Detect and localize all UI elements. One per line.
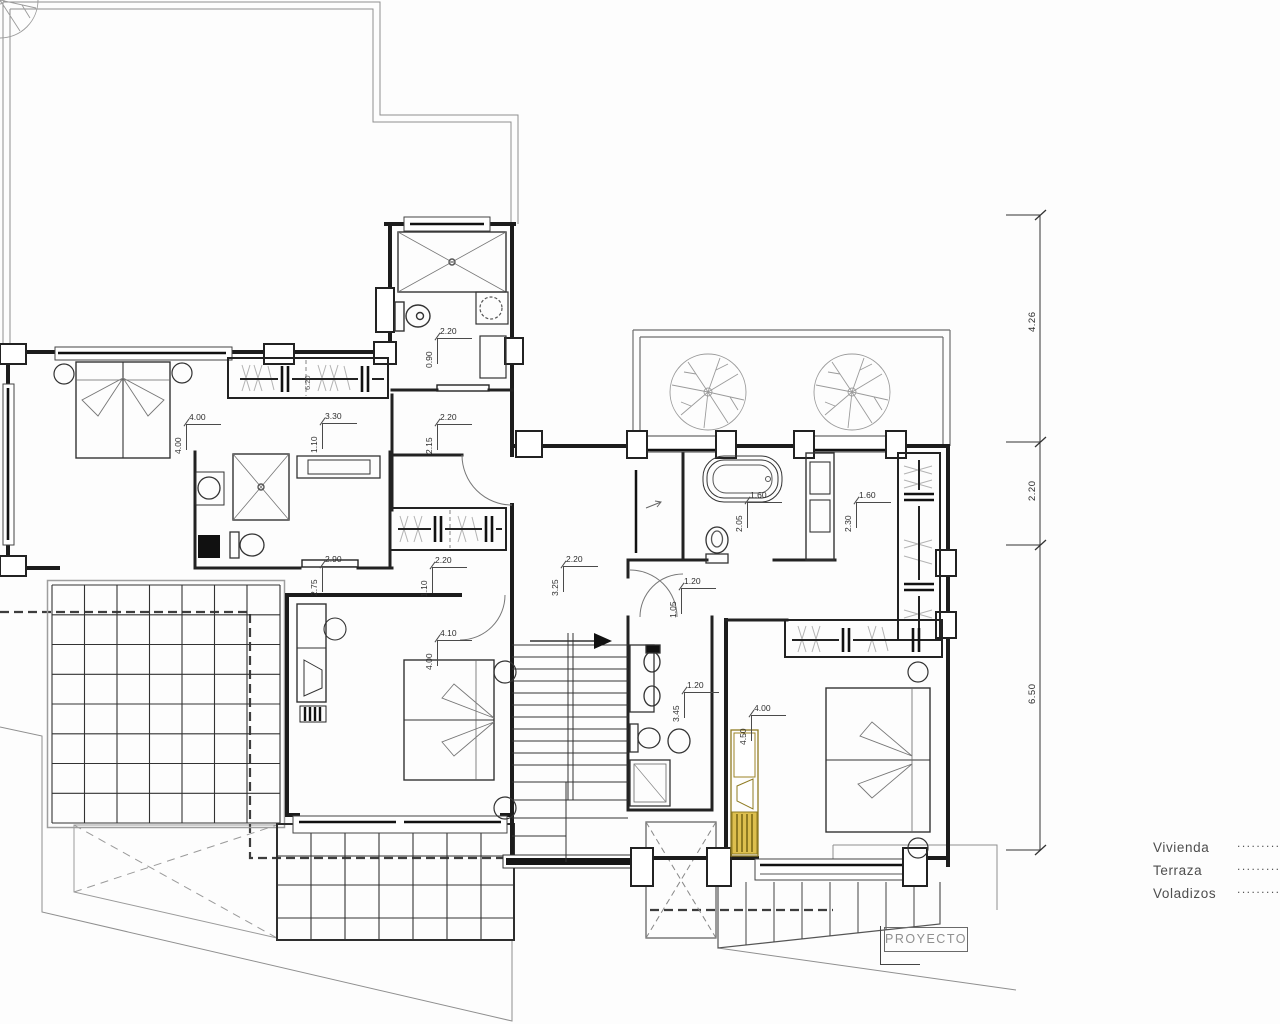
dimension-value-v: 1.05	[668, 601, 678, 618]
floor-plan-canvas	[0, 0, 1280, 1024]
chain-dimension-value: 4.26	[1027, 312, 1038, 333]
wall-piers	[0, 288, 956, 886]
legend-label: Vivienda	[1153, 840, 1237, 855]
dimension-value-h: 3.30	[325, 411, 342, 421]
bathroom-midleft	[196, 454, 380, 567]
arrow-mark	[646, 501, 661, 508]
dimension-value-v: 3.45	[671, 705, 681, 722]
dimension-value-v: 1.10	[309, 436, 319, 453]
dimension-mark	[322, 566, 357, 592]
dimension-mark	[186, 424, 221, 450]
dimension-mark	[432, 567, 467, 593]
dimension-mark	[856, 502, 891, 528]
wardrobe-right-vertical	[898, 453, 940, 640]
bathroom-bottom	[630, 645, 690, 806]
dimension-value-h: 4.00	[189, 412, 206, 422]
bathtub-icon	[703, 456, 782, 502]
bath-shelf	[297, 456, 380, 478]
dimension-value-v: 4.00	[173, 437, 183, 454]
staircase	[512, 633, 628, 862]
dimension-value-v: 2.75	[309, 579, 319, 596]
dimension-value-h: 4.10	[440, 628, 457, 638]
dimension-value-v: 3.25	[550, 579, 560, 596]
dimension-mark	[563, 566, 598, 592]
dimension-value-v: 4.50	[738, 728, 748, 745]
dimension-value-h: 1.60	[859, 490, 876, 500]
terrace-tiles-bottom	[277, 824, 514, 940]
light-shaft	[646, 822, 716, 938]
nightstand	[54, 364, 74, 384]
wardrobe-hall	[390, 508, 506, 550]
legend-row: Voladizos............	[1153, 882, 1280, 905]
legend-dots: ............	[1237, 859, 1280, 873]
project-title: PROYECTO	[885, 932, 967, 946]
legend-label: Voladizos	[1153, 886, 1237, 901]
shower-tray-icon	[630, 760, 670, 806]
nightstand	[172, 363, 192, 383]
dimension-value-v: 2.15	[424, 437, 434, 454]
bottom-left-overhang-cross	[74, 825, 277, 938]
dimension-mark	[437, 640, 472, 666]
bidet-icon	[668, 729, 690, 753]
dimension-mark	[437, 424, 472, 450]
bathroom-top	[395, 232, 508, 391]
chain-dimension-value: 2.20	[1027, 481, 1038, 502]
dimension-mark	[747, 502, 782, 528]
inline-annotation: 6.20	[303, 375, 312, 390]
sliding-door	[437, 385, 489, 391]
shower-tray-icon	[398, 232, 506, 292]
door-arcs	[460, 455, 683, 640]
dimension-value-v: 0.90	[424, 351, 434, 368]
dimension-value-v: 4.00	[424, 653, 434, 670]
dimension-value-h: 1.60	[750, 490, 767, 500]
dimension-mark	[681, 588, 716, 614]
floor-plan-sheet: 2.200.902.202.154.004.003.301.102.902.75…	[0, 0, 1280, 1024]
desk	[297, 604, 346, 722]
shower-tray-icon	[233, 454, 289, 520]
highlighted-cabinet	[731, 730, 758, 856]
dimension-value-h: 4.00	[754, 703, 771, 713]
washbasin-icon	[196, 472, 224, 505]
dimension-value-h: 2.20	[566, 554, 583, 564]
nightstand	[908, 662, 928, 682]
chair-icon	[324, 618, 346, 640]
radiator	[198, 535, 220, 558]
toilet-icon	[706, 527, 728, 563]
project-title-box: PROYECTO	[884, 927, 968, 952]
dimension-chain	[1006, 210, 1046, 855]
dimension-mark	[322, 423, 357, 449]
washbasin-icon	[476, 292, 508, 378]
bed-centre	[404, 660, 516, 819]
dimension-mark	[437, 338, 472, 364]
dimension-value-h: 1.20	[684, 576, 701, 586]
dimension-value-v: 1.10	[419, 580, 429, 597]
direction-arrow-icon	[594, 633, 612, 649]
dimension-value-v: 2.30	[843, 515, 853, 532]
toilet-icon	[630, 724, 660, 752]
dimension-mark	[751, 715, 786, 741]
toilet-icon	[395, 302, 430, 331]
monitor-icon	[304, 660, 322, 696]
bathroom-suite	[636, 453, 834, 563]
dimension-value-v: 2.05	[734, 515, 744, 532]
toilet-icon	[230, 532, 264, 558]
bed-left	[54, 362, 192, 458]
legend-row: Terraza............	[1153, 859, 1280, 882]
tree-terrace	[633, 330, 950, 446]
legend-label: Terraza	[1153, 863, 1237, 878]
dimension-value-h: 2.20	[440, 326, 457, 336]
dimension-value-h: 2.20	[440, 412, 457, 422]
dimension-value-h: 2.20	[435, 555, 452, 565]
double-washbasin	[630, 645, 660, 712]
legend: Vivienda............Terraza............V…	[1153, 836, 1280, 905]
closet-column	[806, 453, 834, 560]
dimension-value-h: 2.90	[325, 554, 342, 564]
legend-row: Vivienda............	[1153, 836, 1280, 859]
tree-icon	[0, 0, 38, 38]
bed-right	[826, 662, 930, 858]
dimension-value-h: 1.20	[687, 680, 704, 690]
legend-dots: ............	[1237, 836, 1280, 850]
chain-dimension-value: 6.50	[1027, 684, 1038, 705]
dimension-mark	[684, 692, 719, 718]
legend-dots: ............	[1237, 882, 1280, 896]
